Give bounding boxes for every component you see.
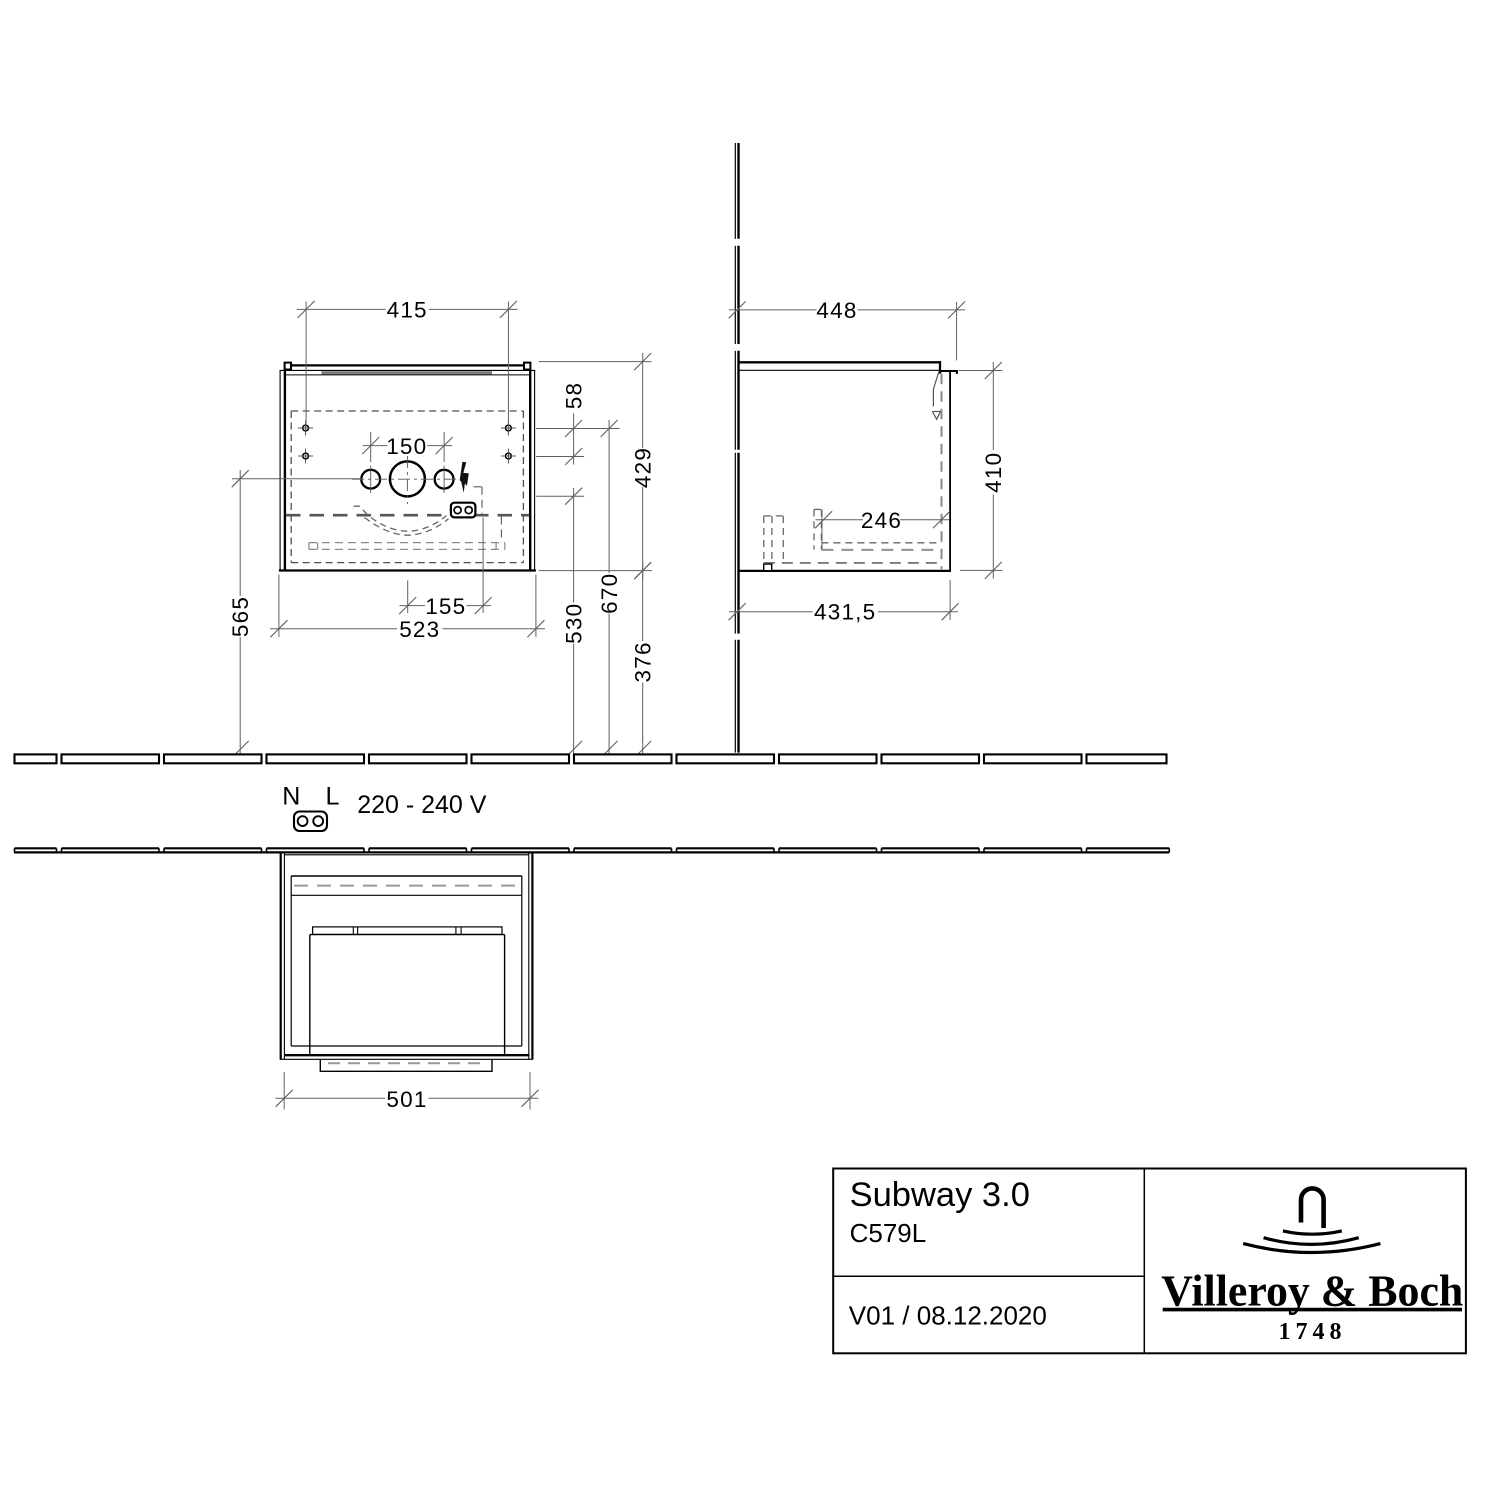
svg-text:448: 448 [816,298,857,323]
svg-text:376: 376 [631,641,656,682]
svg-text:246: 246 [861,508,902,533]
svg-text:155: 155 [425,594,466,619]
svg-text:415: 415 [387,298,428,323]
svg-text:670: 670 [597,573,622,614]
svg-text:Subway 3.0: Subway 3.0 [850,1176,1030,1214]
svg-text:565: 565 [228,596,253,637]
svg-text:1748: 1748 [1279,1319,1347,1345]
svg-text:220 - 240 V: 220 - 240 V [357,791,487,819]
svg-text:L: L [326,782,340,810]
svg-text:58: 58 [561,382,586,409]
svg-text:501: 501 [386,1087,427,1112]
svg-text:N: N [282,782,300,810]
svg-text:530: 530 [561,603,586,644]
svg-text:410: 410 [981,452,1006,493]
svg-text:429: 429 [631,447,656,488]
svg-text:C579L: C579L [850,1218,927,1248]
svg-text:431,5: 431,5 [814,600,876,625]
svg-text:150: 150 [386,434,427,459]
svg-text:523: 523 [399,617,440,642]
svg-text:V01 / 08.12.2020: V01 / 08.12.2020 [849,1300,1047,1330]
